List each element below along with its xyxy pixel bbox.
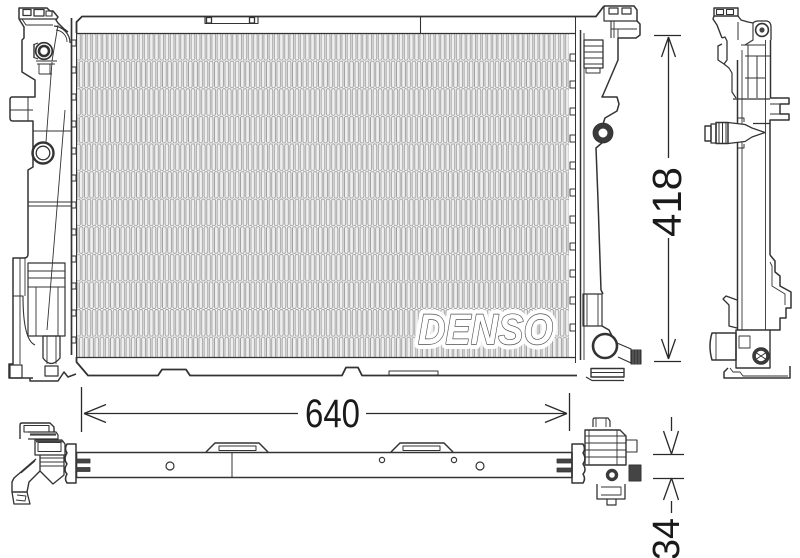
svg-text:34: 34: [646, 518, 688, 558]
svg-text:418: 418: [644, 167, 690, 237]
svg-text:640: 640: [305, 392, 360, 436]
svg-text:DENSO: DENSO: [418, 306, 553, 354]
